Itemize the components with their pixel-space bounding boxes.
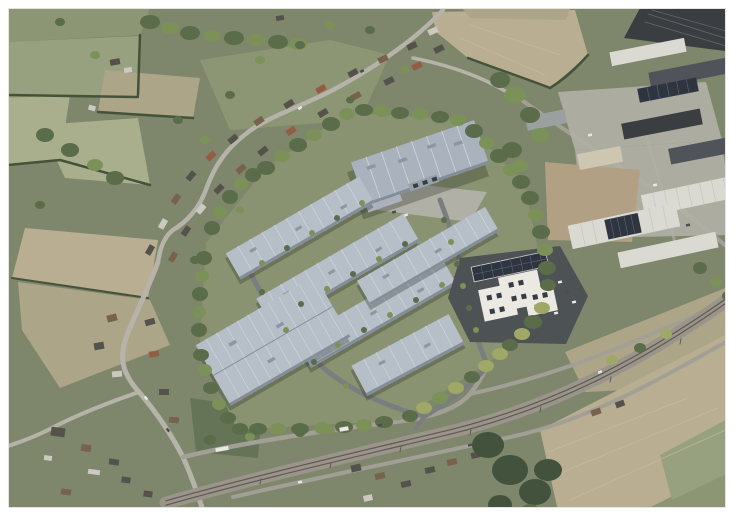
aerial-photo — [0, 0, 736, 521]
photo — [8, 8, 736, 520]
framed-aerial-photo — [0, 0, 736, 521]
